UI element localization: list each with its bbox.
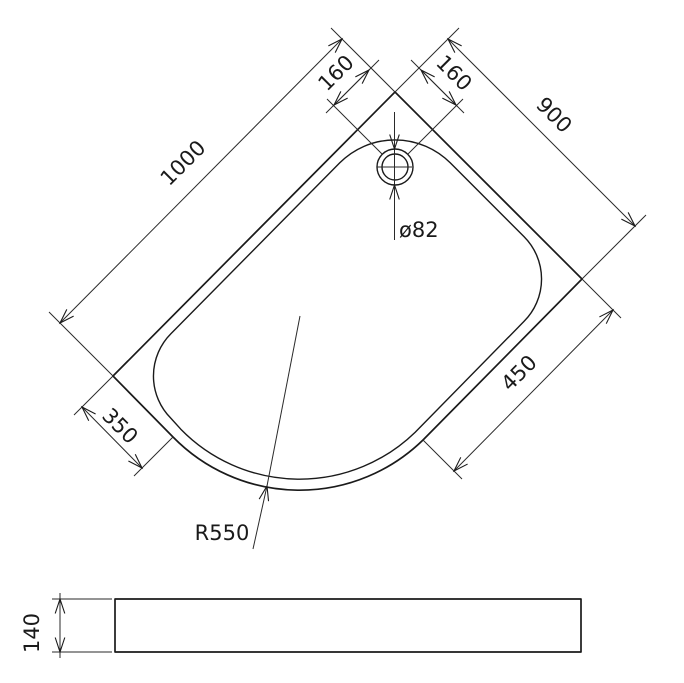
- ext-350-bottom: [134, 437, 173, 476]
- plan-view: 1000 900 160 160 450 350: [49, 28, 646, 549]
- ext-900-bottom: [582, 215, 646, 279]
- shower-tray-drawing: 1000 900 160 160 450 350: [0, 0, 684, 683]
- dim-1000-line: [60, 39, 342, 323]
- ext-1000-bottom: [49, 312, 113, 376]
- technical-drawing-canvas: 1000 900 160 160 450 350: [0, 0, 684, 683]
- ext-450-bottom: [423, 440, 462, 479]
- dim-350: 350: [82, 403, 143, 468]
- dim-r550: R550: [195, 316, 300, 549]
- r550-leader-inner: [267, 316, 300, 486]
- dim-160-right-label: 160: [431, 50, 476, 95]
- ext-450-top: [582, 279, 621, 318]
- dim-160-right: 160: [411, 50, 477, 113]
- dim-1000: 1000: [60, 39, 342, 323]
- dim-900-line: [448, 39, 635, 226]
- dim-160-left-label: 160: [313, 50, 358, 95]
- dim-900: 900: [448, 39, 635, 226]
- dim-140-label: 140: [20, 613, 44, 653]
- dim-1000-label: 1000: [156, 136, 211, 191]
- dim-dia82: ø82: [395, 112, 439, 242]
- ext-drain-right: [408, 99, 463, 154]
- side-view-profile: [115, 599, 581, 652]
- dim-160-left: 160: [313, 50, 379, 113]
- ext-drain-left: [327, 99, 382, 154]
- dim-450-line: [454, 310, 613, 471]
- dim-140: 140: [20, 593, 60, 658]
- dim-dia82-label: ø82: [399, 218, 439, 242]
- r550-leader-outer: [253, 486, 267, 549]
- basin-outline: [153, 140, 541, 479]
- side-view: 140: [20, 593, 581, 658]
- dim-450: 450: [454, 310, 613, 471]
- dim-r550-label: R550: [195, 521, 250, 545]
- dim-350-label: 350: [97, 403, 142, 448]
- dim-900-label: 900: [531, 92, 576, 137]
